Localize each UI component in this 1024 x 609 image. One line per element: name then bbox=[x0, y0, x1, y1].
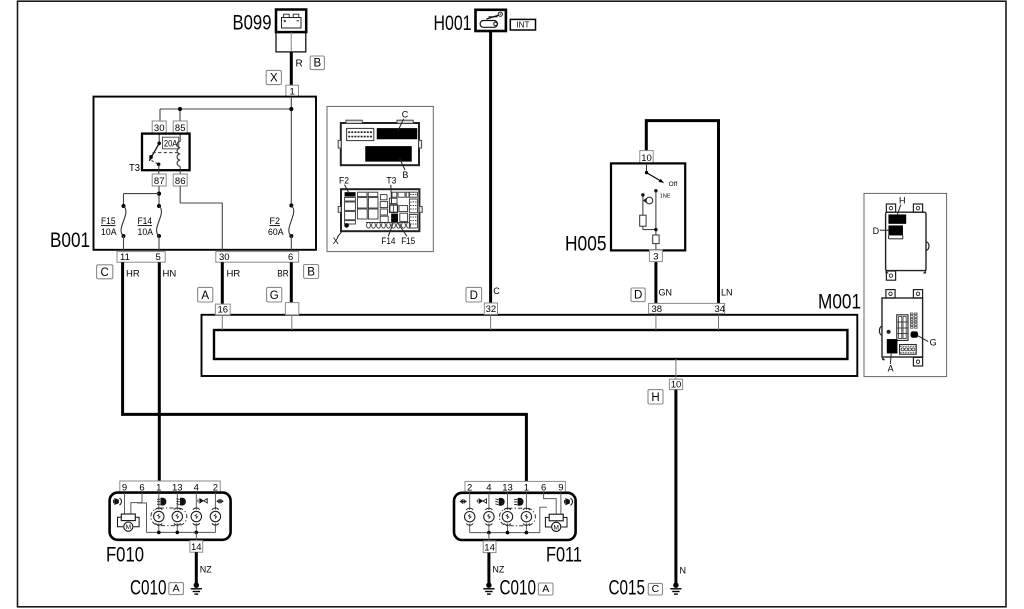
svg-text:X: X bbox=[270, 73, 278, 85]
svg-text:C010: C010 bbox=[500, 577, 537, 600]
svg-text:C: C bbox=[402, 109, 409, 119]
svg-text:C: C bbox=[493, 286, 500, 296]
svg-text:G: G bbox=[930, 338, 937, 348]
svg-text:16: 16 bbox=[218, 305, 229, 316]
svg-text:C010: C010 bbox=[130, 577, 167, 600]
svg-text:INT: INT bbox=[516, 21, 529, 30]
svg-text:D: D bbox=[873, 226, 880, 236]
svg-text:34: 34 bbox=[715, 304, 726, 315]
svg-text:B: B bbox=[313, 58, 321, 70]
svg-text:HN: HN bbox=[163, 269, 177, 280]
svg-text:M001: M001 bbox=[818, 291, 861, 314]
svg-text:A: A bbox=[201, 290, 209, 302]
svg-text:G: G bbox=[270, 290, 279, 302]
svg-text:85: 85 bbox=[175, 123, 186, 134]
svg-text:H001: H001 bbox=[434, 12, 472, 35]
svg-text:14: 14 bbox=[484, 542, 495, 553]
svg-text:C015: C015 bbox=[609, 577, 646, 600]
svg-text:NZ: NZ bbox=[492, 565, 504, 575]
svg-text:14: 14 bbox=[191, 542, 202, 553]
svg-text:10: 10 bbox=[641, 153, 652, 164]
svg-text:A: A bbox=[173, 583, 180, 595]
svg-text:A: A bbox=[888, 363, 894, 373]
svg-text:HR: HR bbox=[126, 269, 140, 280]
svg-text:6: 6 bbox=[288, 252, 293, 263]
svg-text:3: 3 bbox=[653, 251, 658, 262]
svg-text:C: C bbox=[101, 267, 109, 279]
svg-text:11: 11 bbox=[120, 252, 130, 263]
svg-text:F2: F2 bbox=[339, 176, 349, 186]
svg-text:30: 30 bbox=[154, 123, 165, 134]
svg-text:F15: F15 bbox=[401, 236, 415, 246]
svg-text:30: 30 bbox=[219, 252, 230, 263]
svg-text:R: R bbox=[296, 59, 303, 70]
svg-text:N: N bbox=[680, 566, 687, 576]
svg-text:H: H bbox=[899, 195, 906, 205]
svg-text:10A: 10A bbox=[101, 227, 117, 238]
svg-text:F14: F14 bbox=[381, 236, 395, 246]
svg-text:10A: 10A bbox=[138, 227, 154, 238]
svg-text:NZ: NZ bbox=[200, 565, 212, 575]
svg-text:H005: H005 bbox=[565, 233, 607, 256]
svg-text:M: M bbox=[553, 524, 558, 531]
svg-text:20A: 20A bbox=[164, 139, 178, 149]
svg-text:32: 32 bbox=[486, 304, 497, 315]
svg-text:M: M bbox=[126, 524, 131, 531]
svg-text:1NE: 1NE bbox=[660, 194, 671, 200]
svg-text:87: 87 bbox=[154, 176, 165, 187]
svg-text:10: 10 bbox=[671, 379, 682, 390]
svg-text:LN: LN bbox=[721, 288, 733, 298]
svg-text:T3: T3 bbox=[386, 176, 396, 186]
svg-text:60A: 60A bbox=[268, 227, 284, 238]
svg-text:86: 86 bbox=[175, 176, 186, 187]
svg-text:GN: GN bbox=[659, 288, 673, 298]
svg-text:B099: B099 bbox=[233, 12, 272, 35]
svg-text:HR: HR bbox=[227, 269, 241, 280]
svg-text:C: C bbox=[652, 583, 660, 595]
svg-text:F011: F011 bbox=[546, 544, 582, 567]
svg-text:B: B bbox=[307, 267, 315, 279]
svg-text:D: D bbox=[634, 290, 642, 302]
svg-text:X: X bbox=[333, 236, 339, 246]
svg-text:D: D bbox=[470, 290, 478, 302]
svg-text:Off: Off bbox=[669, 181, 678, 188]
svg-text:F010: F010 bbox=[106, 544, 144, 567]
svg-text:A: A bbox=[542, 583, 549, 595]
svg-text:BR: BR bbox=[277, 269, 289, 280]
svg-text:B: B bbox=[402, 170, 408, 180]
svg-text:5: 5 bbox=[156, 252, 161, 263]
svg-text:B001: B001 bbox=[50, 229, 90, 252]
svg-text:H: H bbox=[651, 392, 659, 404]
svg-text:T3: T3 bbox=[129, 162, 140, 174]
svg-text:38: 38 bbox=[652, 304, 663, 315]
